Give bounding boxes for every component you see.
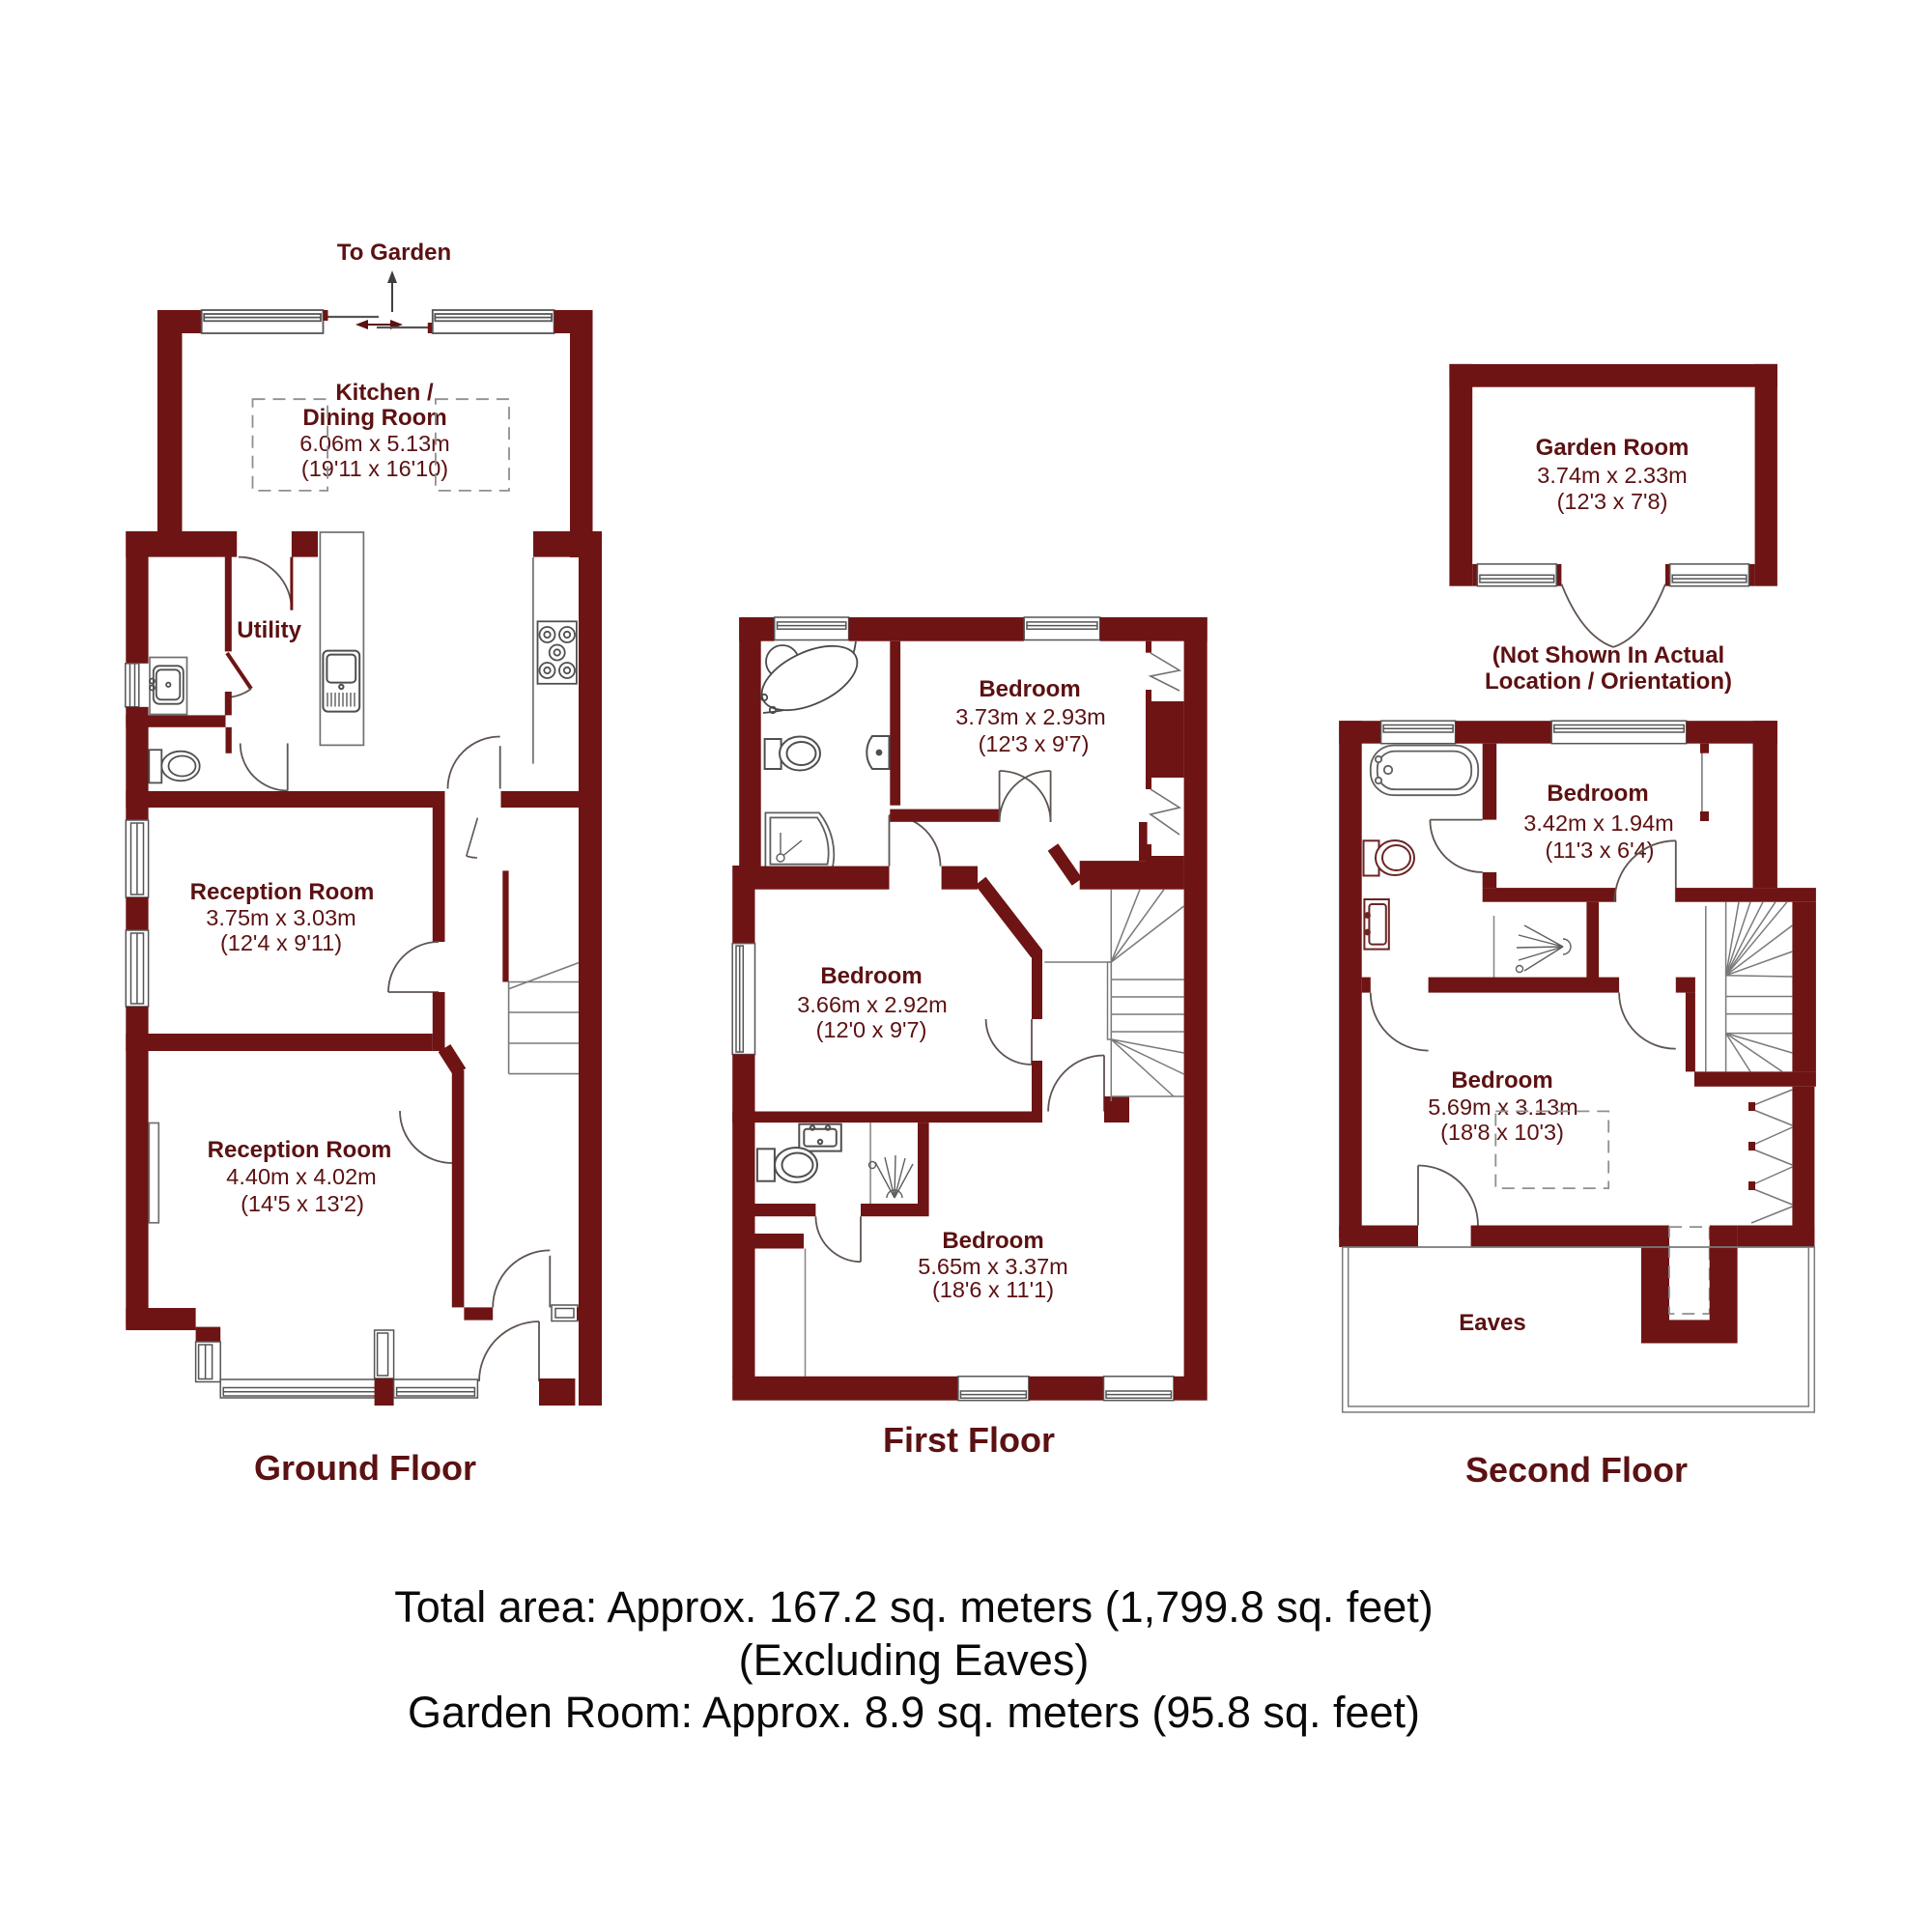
svg-text:Bedroom: Bedroom bbox=[820, 963, 922, 989]
svg-text:Dining Room: Dining Room bbox=[302, 405, 446, 431]
svg-text:Utility: Utility bbox=[237, 617, 301, 643]
svg-text:3.42m x 1.94m: 3.42m x 1.94m bbox=[1523, 810, 1673, 836]
svg-text:Garden Room: Garden Room bbox=[1536, 435, 1690, 461]
svg-text:Bedroom: Bedroom bbox=[942, 1228, 1043, 1254]
svg-text:Bedroom: Bedroom bbox=[1451, 1067, 1552, 1094]
svg-text:(14'5 x 13'2): (14'5 x 13'2) bbox=[241, 1191, 364, 1216]
svg-text:Kitchen /: Kitchen / bbox=[335, 380, 434, 406]
svg-text:(12'3 x 7'8): (12'3 x 7'8) bbox=[1557, 489, 1668, 514]
svg-text:Total area: Approx. 167.2 sq.: Total area: Approx. 167.2 sq. meters (1,… bbox=[394, 1582, 1434, 1632]
svg-text:(11'3 x 6'4): (11'3 x 6'4) bbox=[1545, 838, 1654, 863]
svg-text:6.06m x 5.13m: 6.06m x 5.13m bbox=[299, 431, 449, 456]
svg-text:First Floor: First Floor bbox=[883, 1420, 1055, 1460]
svg-text:(19'11 x 16'10): (19'11 x 16'10) bbox=[301, 456, 448, 481]
svg-text:Garden Room: Approx. 8.9 sq. m: Garden Room: Approx. 8.9 sq. meters (95.… bbox=[408, 1688, 1420, 1737]
svg-text:(18'8 x 10'3): (18'8 x 10'3) bbox=[1440, 1120, 1564, 1145]
svg-text:(12'0 x 9'7): (12'0 x 9'7) bbox=[816, 1017, 927, 1042]
svg-text:(12'3 x 9'7): (12'3 x 9'7) bbox=[979, 731, 1090, 756]
svg-text:Second Floor: Second Floor bbox=[1465, 1450, 1688, 1490]
svg-text:Eaves: Eaves bbox=[1459, 1310, 1525, 1336]
svg-text:(Not Shown In Actual: (Not Shown In Actual bbox=[1492, 642, 1724, 668]
svg-text:Ground Floor: Ground Floor bbox=[254, 1448, 476, 1488]
svg-text:Location / Orientation): Location / Orientation) bbox=[1485, 668, 1732, 695]
svg-text:Bedroom: Bedroom bbox=[1547, 781, 1648, 807]
svg-text:Reception Room: Reception Room bbox=[190, 879, 375, 905]
svg-text:Reception Room: Reception Room bbox=[208, 1137, 392, 1163]
svg-text:4.40m x 4.02m: 4.40m x 4.02m bbox=[226, 1164, 376, 1189]
svg-text:3.66m x 2.92m: 3.66m x 2.92m bbox=[797, 992, 947, 1017]
svg-text:5.65m x 3.37m: 5.65m x 3.37m bbox=[918, 1254, 1067, 1279]
svg-text:3.73m x 2.93m: 3.73m x 2.93m bbox=[955, 704, 1105, 729]
svg-text:(Excluding Eaves): (Excluding Eaves) bbox=[739, 1635, 1090, 1685]
svg-text:(12'4 x 9'11): (12'4 x 9'11) bbox=[220, 930, 342, 955]
svg-text:(18'6 x 11'1): (18'6 x 11'1) bbox=[932, 1277, 1054, 1302]
svg-text:Bedroom: Bedroom bbox=[979, 676, 1080, 702]
svg-text:To Garden: To Garden bbox=[337, 240, 451, 266]
svg-text:5.69m x 3.13m: 5.69m x 3.13m bbox=[1428, 1094, 1577, 1120]
svg-text:3.74m x 2.33m: 3.74m x 2.33m bbox=[1537, 463, 1687, 488]
svg-text:3.75m x 3.03m: 3.75m x 3.03m bbox=[206, 905, 355, 930]
